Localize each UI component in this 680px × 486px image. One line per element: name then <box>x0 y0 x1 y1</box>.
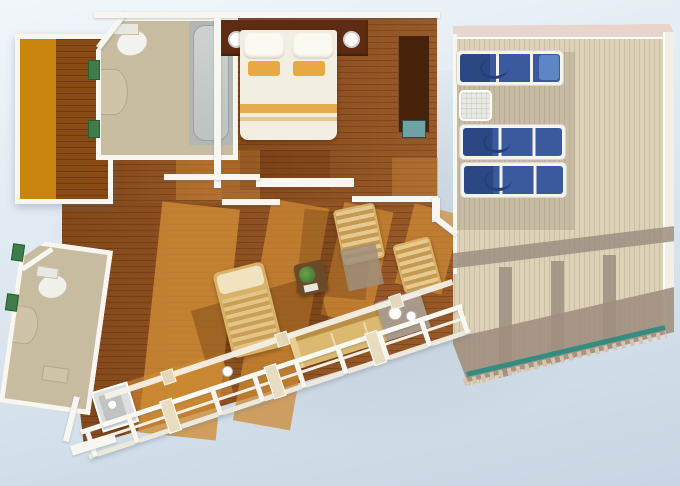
bed-foot-console <box>256 178 354 187</box>
floorplan-canvas <box>0 0 680 486</box>
lounger-towel <box>484 170 512 191</box>
towel-shelf <box>11 243 25 262</box>
partition-wall <box>222 199 280 205</box>
accent-pillow <box>293 61 325 76</box>
bed-runner-stripe <box>240 104 337 113</box>
toilet-tank <box>36 265 59 279</box>
double-bed <box>240 30 337 140</box>
towel-shelf <box>5 293 19 312</box>
vanity-counter <box>41 365 69 383</box>
lounger-pad <box>539 55 559 80</box>
bed-runner-stripe <box>240 117 337 121</box>
pillow <box>243 33 285 59</box>
floor-fitting <box>222 366 233 377</box>
lounger-towel <box>483 132 511 153</box>
pillow <box>292 33 334 59</box>
partition-wall <box>352 196 438 202</box>
sun-lounger <box>460 162 567 198</box>
deck-side-table <box>459 90 492 121</box>
book <box>303 283 318 293</box>
lounger-towel <box>480 58 508 79</box>
coffee-table-with-plant <box>293 259 329 297</box>
sun-lounger <box>456 50 564 86</box>
accent-pillow <box>248 61 280 76</box>
sun-lounger <box>459 124 566 160</box>
outer-top-wall <box>94 12 440 18</box>
bedside-lamp <box>343 31 360 48</box>
tv-cabinet <box>398 36 429 132</box>
sink-counter <box>101 69 128 115</box>
bathroom-door-opening <box>128 144 154 152</box>
tv-screen <box>402 120 426 138</box>
lounger-cushion <box>464 166 563 194</box>
lounger-cushion <box>463 128 562 156</box>
partition-wall <box>164 174 260 180</box>
bedroom-west-wall <box>214 18 221 188</box>
towel-shelf <box>88 120 100 138</box>
towel-shelf <box>88 60 100 80</box>
deck-top-beam <box>449 24 674 39</box>
plant <box>298 265 317 284</box>
